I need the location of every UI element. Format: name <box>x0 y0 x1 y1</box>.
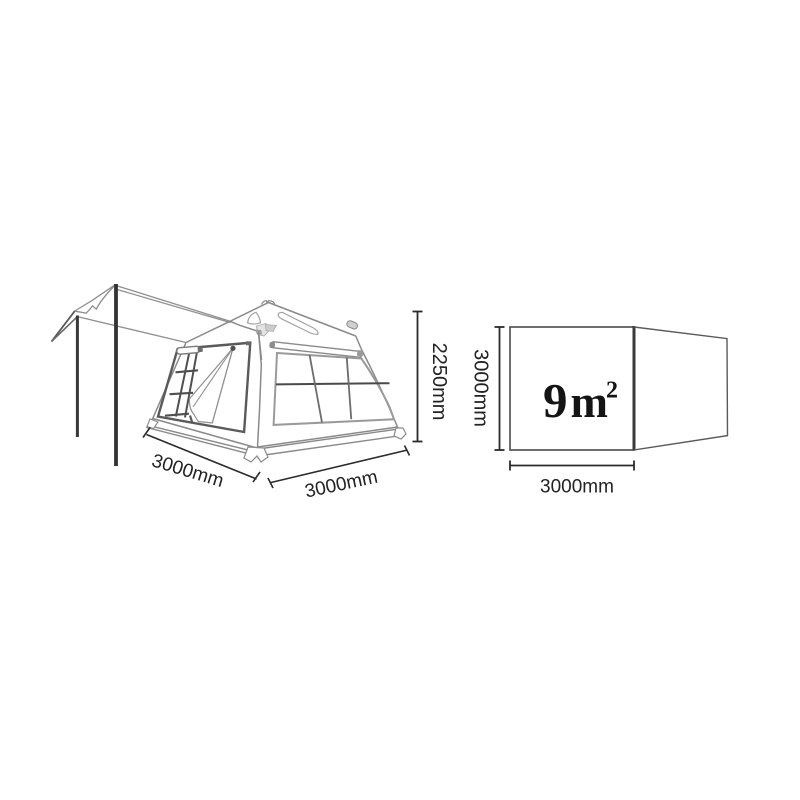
svg-text:3000mm: 3000mm <box>149 450 226 492</box>
svg-text:3000mm: 3000mm <box>470 349 492 427</box>
svg-text:3000mm: 3000mm <box>540 477 614 498</box>
svg-text:2250mm: 2250mm <box>428 343 450 421</box>
svg-text:9m2: 9m2 <box>543 373 618 428</box>
